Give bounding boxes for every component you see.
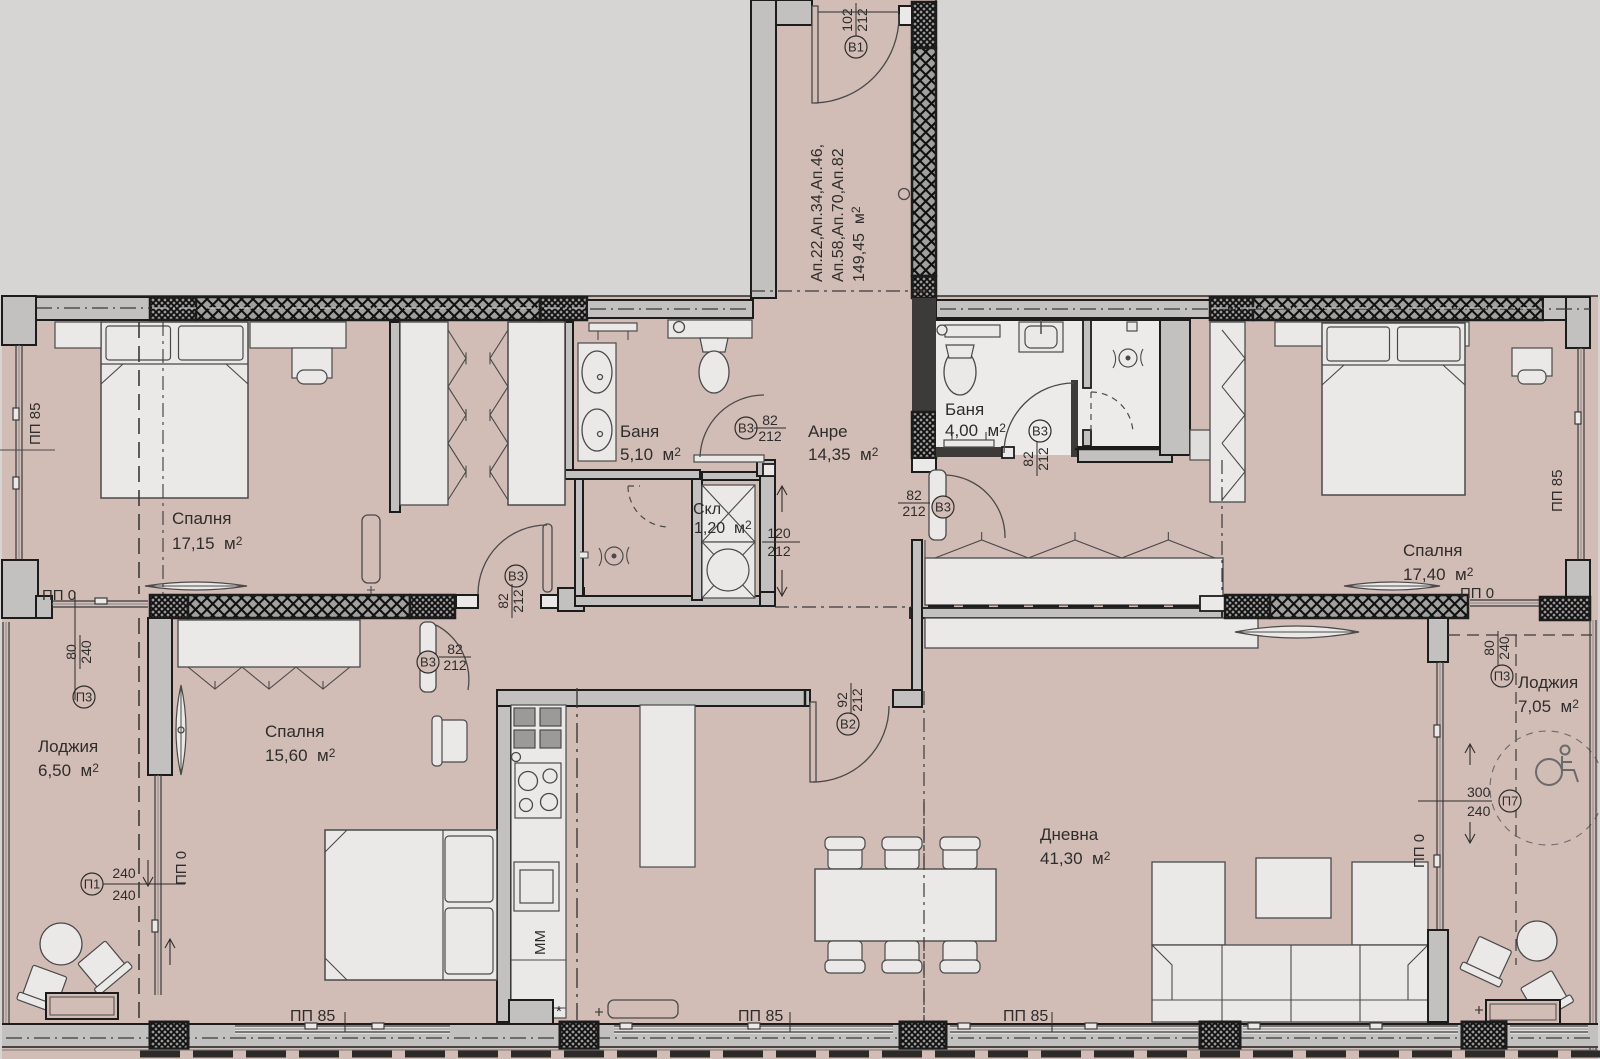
svg-text:ПП 85: ПП 85 (27, 403, 44, 445)
svg-text:120: 120 (767, 525, 791, 541)
svg-text:82: 82 (906, 487, 922, 503)
svg-text:82: 82 (447, 641, 463, 657)
svg-text:212: 212 (902, 503, 926, 519)
svg-text:17,40 м2: 17,40 м2 (1403, 565, 1474, 584)
svg-text:B3: B3 (508, 569, 524, 584)
svg-text:Баня: Баня (620, 422, 659, 441)
svg-text:ПП 85: ПП 85 (1003, 1008, 1048, 1025)
svg-text:B3: B3 (420, 655, 436, 670)
svg-text:82: 82 (1020, 451, 1036, 467)
svg-text:Лоджия: Лоджия (38, 737, 98, 756)
svg-text:149,45 м2: 149,45 м2 (849, 206, 868, 282)
svg-text:15,60 м2: 15,60 м2 (265, 746, 336, 765)
svg-text:212: 212 (443, 657, 467, 673)
svg-text:4,00 м2: 4,00 м2 (945, 421, 1006, 440)
svg-text:B3: B3 (1032, 424, 1048, 439)
svg-text:П3: П3 (76, 690, 93, 705)
svg-text:Ап.58,Ап.70,Ап.82: Ап.58,Ап.70,Ап.82 (830, 148, 847, 282)
svg-text:212: 212 (510, 589, 526, 613)
svg-text:212: 212 (758, 428, 782, 444)
svg-text:B2: B2 (840, 717, 856, 732)
svg-text:1,20 м2: 1,20 м2 (694, 518, 752, 537)
svg-text:80: 80 (1481, 640, 1497, 656)
svg-text:Дневна: Дневна (1040, 825, 1099, 844)
svg-text:82: 82 (495, 593, 511, 609)
svg-text:ПП 85: ПП 85 (290, 1008, 335, 1025)
svg-text:Скл: Скл (693, 501, 721, 518)
svg-text:102: 102 (839, 8, 855, 32)
svg-text:80: 80 (63, 644, 79, 660)
svg-text:14,35 м2: 14,35 м2 (808, 445, 879, 464)
svg-text:ПП 0: ПП 0 (173, 851, 190, 885)
svg-text:B3: B3 (738, 421, 754, 436)
svg-text:ПП 0: ПП 0 (1460, 585, 1494, 602)
svg-text:92: 92 (834, 692, 850, 708)
svg-text:П1: П1 (84, 877, 101, 892)
svg-text:212: 212 (767, 543, 791, 559)
svg-text:41,30 м2: 41,30 м2 (1040, 849, 1111, 868)
svg-text:7,05 м2: 7,05 м2 (1518, 697, 1579, 716)
svg-text:П3: П3 (1494, 669, 1511, 684)
svg-text:Спалня: Спалня (1403, 541, 1462, 560)
svg-text:82: 82 (762, 412, 778, 428)
svg-text:17,15 м2: 17,15 м2 (172, 534, 243, 553)
svg-text:240: 240 (78, 640, 94, 664)
svg-text:Спалня: Спалня (172, 509, 231, 528)
svg-text:240: 240 (112, 865, 136, 881)
svg-text:ПП 0: ПП 0 (1411, 834, 1428, 868)
svg-text:212: 212 (849, 688, 865, 712)
svg-text:ММ: ММ (532, 930, 549, 955)
svg-text:212: 212 (1035, 447, 1051, 471)
svg-text:212: 212 (854, 8, 870, 32)
svg-text:240: 240 (1496, 636, 1512, 660)
svg-text:Анре: Анре (808, 422, 848, 441)
svg-text:6,50 м2: 6,50 м2 (38, 761, 99, 780)
svg-text:300: 300 (1467, 784, 1491, 800)
svg-text:ПП 85: ПП 85 (1549, 470, 1566, 512)
svg-text:5,10 м2: 5,10 м2 (620, 445, 681, 464)
svg-text:240: 240 (1467, 803, 1491, 819)
svg-text:240: 240 (112, 887, 136, 903)
svg-text:ПП 85: ПП 85 (738, 1008, 783, 1025)
svg-text:B1: B1 (848, 40, 864, 55)
svg-text:*: * (556, 1003, 562, 1020)
svg-text:П7: П7 (1502, 794, 1519, 809)
svg-text:Баня: Баня (945, 400, 984, 419)
svg-text:Лоджия: Лоджия (1518, 673, 1578, 692)
svg-text:Ап.22,Ап.34,Ап.46,: Ап.22,Ап.34,Ап.46, (809, 144, 826, 282)
svg-text:Спалня: Спалня (265, 722, 324, 741)
svg-text:B3: B3 (935, 500, 951, 515)
